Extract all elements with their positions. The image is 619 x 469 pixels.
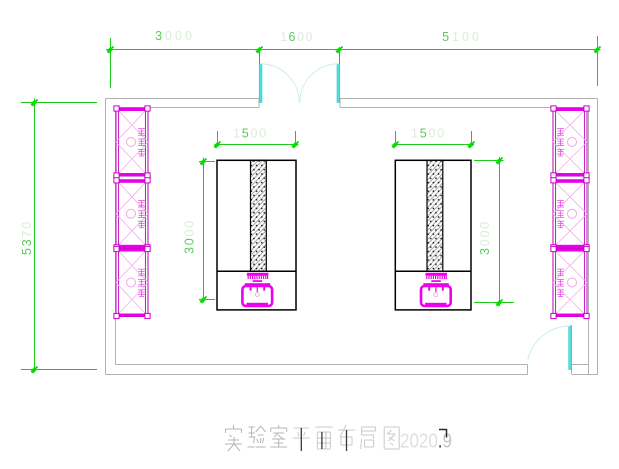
svg-text:3000: 3000 xyxy=(155,29,195,43)
svg-text:5370: 5370 xyxy=(20,220,34,255)
svg-text:1500: 1500 xyxy=(233,127,268,141)
svg-text:3000: 3000 xyxy=(183,219,197,254)
svg-text:2020.9: 2020.9 xyxy=(400,429,452,452)
svg-text:3000: 3000 xyxy=(478,220,492,255)
svg-text:5100: 5100 xyxy=(442,30,482,44)
svg-text:1600: 1600 xyxy=(280,30,314,44)
svg-text:1500: 1500 xyxy=(411,127,446,141)
